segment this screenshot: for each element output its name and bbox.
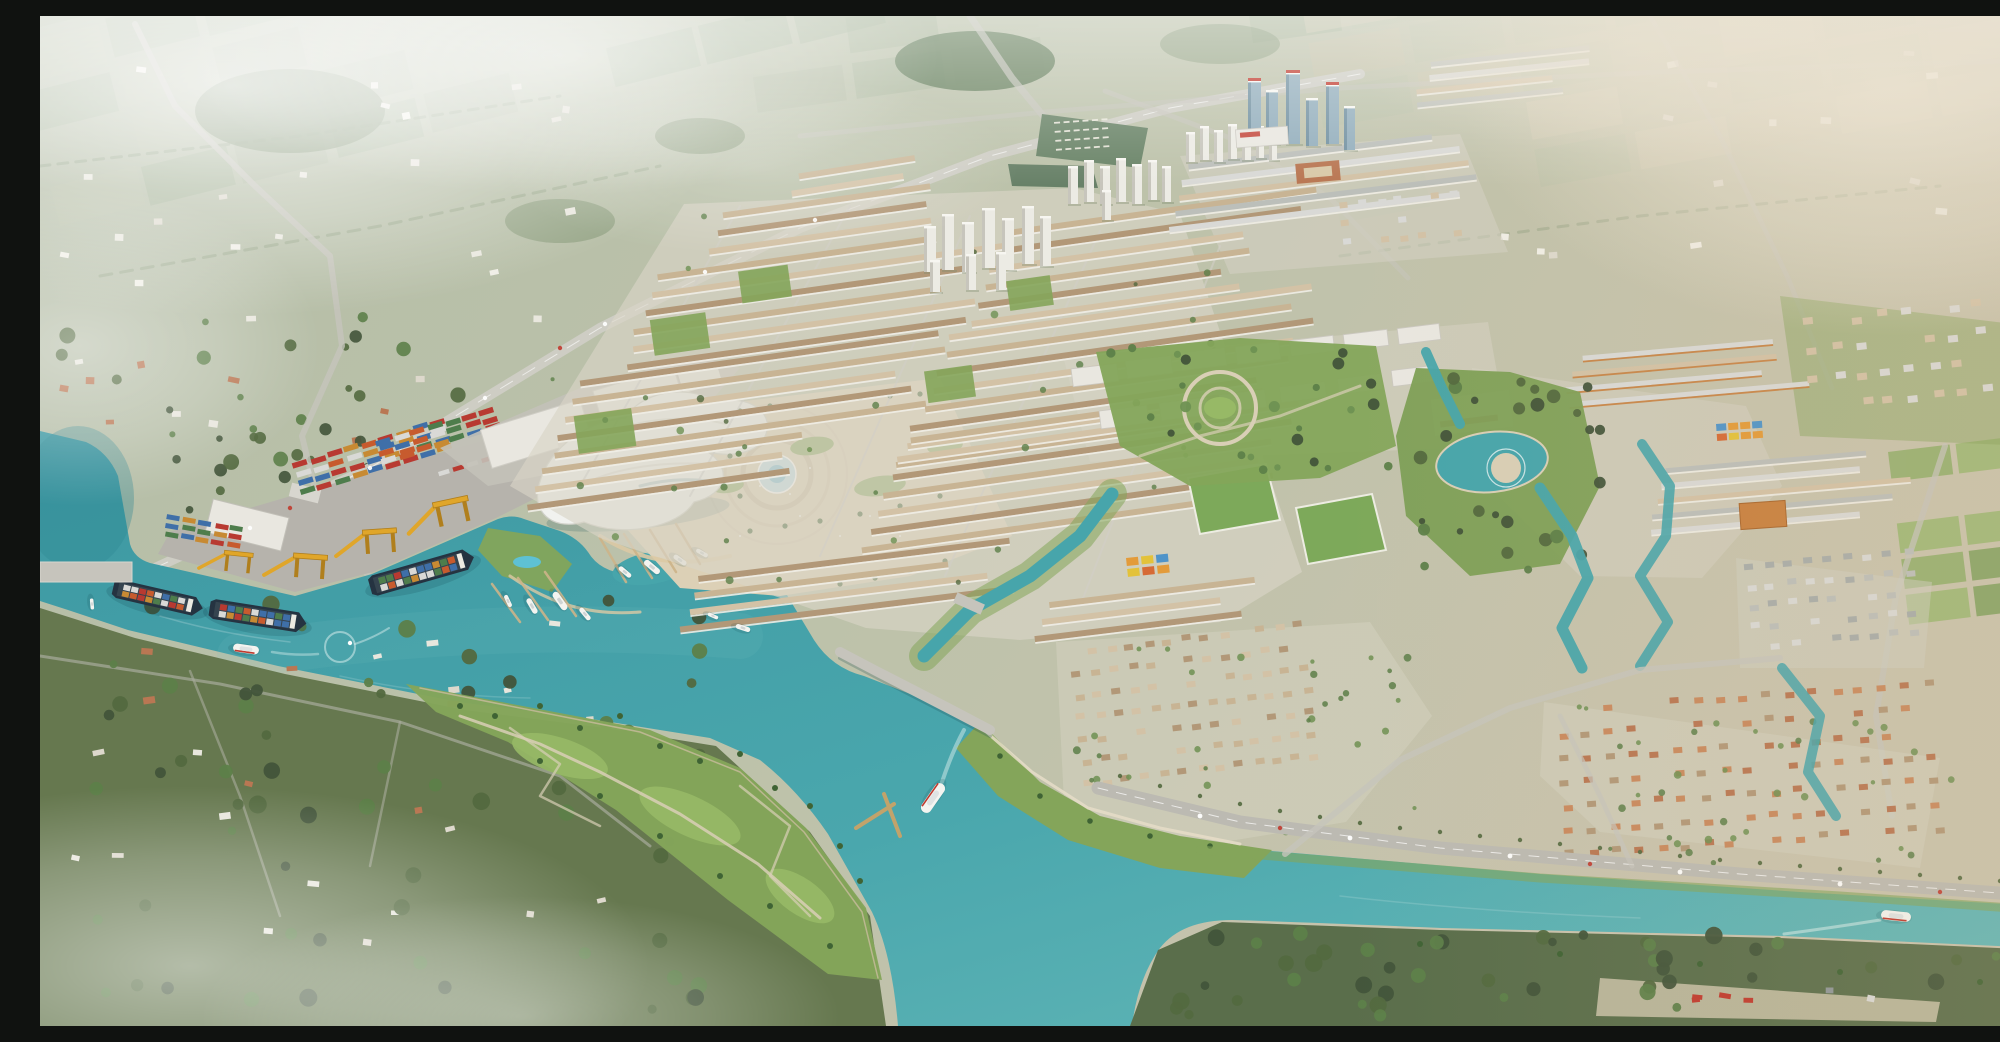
villa-gardens bbox=[1194, 746, 1200, 752]
village-trees-nw bbox=[186, 506, 194, 514]
school-colorful-cell bbox=[1156, 554, 1169, 563]
park-trees bbox=[1250, 346, 1257, 353]
palm-trees bbox=[597, 793, 603, 799]
villas-center-cell bbox=[1114, 709, 1124, 716]
school-colorful-cell bbox=[1126, 557, 1139, 566]
village-trees bbox=[219, 765, 233, 779]
palm-trees bbox=[1087, 818, 1093, 824]
village-houses-nw bbox=[416, 376, 425, 382]
scene-layers bbox=[40, 16, 2000, 1026]
villas-center-cell bbox=[1186, 681, 1196, 688]
village-trees-nw bbox=[291, 449, 303, 461]
village-trees-nw bbox=[354, 390, 366, 402]
villas-center-cell bbox=[1188, 700, 1198, 707]
highway-cars bbox=[603, 322, 607, 326]
villa-gardens bbox=[1073, 746, 1081, 754]
villas-center-cell bbox=[1233, 760, 1243, 767]
street-trees bbox=[873, 490, 878, 495]
street-trees bbox=[807, 447, 812, 452]
street-trees bbox=[577, 482, 584, 489]
palm-trees bbox=[827, 943, 833, 949]
villas-center-cell bbox=[1075, 713, 1085, 720]
village-trees bbox=[264, 762, 280, 778]
apartment-towers-shadow bbox=[1084, 202, 1097, 204]
palm-trees bbox=[577, 725, 583, 731]
village-trees bbox=[503, 675, 517, 689]
apartment-towers bbox=[985, 210, 995, 268]
villas-center-cell bbox=[1198, 634, 1208, 641]
street-trees bbox=[1040, 387, 1046, 393]
village-trees-nw bbox=[358, 312, 368, 322]
villa-gardens bbox=[1089, 778, 1094, 783]
palm-trees bbox=[807, 803, 813, 809]
villas-center-cell bbox=[1111, 688, 1121, 695]
village-trees-nw bbox=[216, 486, 225, 495]
street-trees bbox=[742, 444, 747, 449]
villas-center-cell bbox=[1083, 759, 1093, 766]
villa-gardens bbox=[1310, 671, 1317, 678]
village-trees bbox=[653, 848, 668, 863]
farm-houses bbox=[533, 315, 541, 322]
village-houses bbox=[141, 648, 153, 655]
park-trees bbox=[1106, 348, 1115, 357]
villas-center-cell bbox=[1260, 646, 1270, 653]
villas-center-cell bbox=[1145, 641, 1155, 648]
palm-trees bbox=[997, 753, 1003, 759]
apartment-towers-roof bbox=[996, 252, 1006, 254]
street-trees bbox=[671, 485, 677, 491]
apartment-towers-shadow bbox=[1148, 200, 1160, 202]
villas-center-cell bbox=[1267, 713, 1277, 720]
apartment-towers-shadow bbox=[1132, 204, 1145, 206]
park-trees bbox=[1325, 465, 1332, 472]
park-trees bbox=[1147, 413, 1155, 421]
street-trees bbox=[643, 395, 648, 400]
villas-center-cell bbox=[1146, 662, 1156, 669]
village-trees-nw bbox=[273, 452, 288, 467]
villas-center-cell bbox=[1152, 705, 1162, 712]
villas-center-cell bbox=[1124, 644, 1134, 651]
villas-center-cell bbox=[1299, 664, 1309, 671]
villas-center-cell bbox=[1290, 753, 1300, 760]
street-trees bbox=[720, 483, 727, 490]
villa-gardens bbox=[1203, 766, 1207, 770]
village-trees bbox=[239, 687, 252, 700]
container-ship-container bbox=[274, 620, 282, 627]
village-trees bbox=[110, 660, 118, 668]
park-trees bbox=[1180, 401, 1191, 412]
village-trees bbox=[155, 767, 166, 778]
village-trees-nw bbox=[349, 330, 361, 342]
street-trees bbox=[1190, 317, 1196, 323]
villas-center-cell bbox=[1275, 624, 1285, 631]
village-trees-nw bbox=[279, 471, 291, 483]
village-houses bbox=[193, 749, 202, 755]
park-trees bbox=[1174, 351, 1181, 358]
villas-center-cell bbox=[1264, 693, 1274, 700]
park-trees bbox=[1292, 434, 1304, 446]
palm-trees bbox=[717, 873, 723, 879]
far-bank-trees bbox=[1184, 1010, 1193, 1019]
apartment-towers-roof bbox=[1102, 190, 1111, 192]
park-trees bbox=[1274, 464, 1280, 470]
villas-center-cell bbox=[1087, 647, 1097, 654]
village-trees bbox=[692, 643, 707, 658]
village-trees-nw bbox=[345, 385, 352, 392]
villas-center-cell bbox=[1183, 655, 1193, 662]
village-trees bbox=[603, 595, 615, 607]
apartment-towers-roof bbox=[1022, 206, 1034, 208]
street-trees bbox=[676, 427, 684, 435]
palm-trees bbox=[737, 751, 743, 757]
villas-center-cell bbox=[1243, 673, 1253, 680]
villas-center-cell bbox=[1091, 669, 1101, 676]
palm-trees bbox=[657, 833, 663, 839]
villas-center-cell bbox=[1176, 747, 1186, 754]
highway-cars bbox=[288, 506, 292, 510]
villa-gardens bbox=[1322, 701, 1328, 707]
apartment-towers-shadow bbox=[1116, 202, 1129, 204]
park-trees bbox=[1237, 451, 1245, 459]
far-bank-trees bbox=[1208, 929, 1225, 946]
villas-center-cell bbox=[1309, 754, 1319, 761]
apartment-towers-roof bbox=[966, 254, 976, 256]
villa-gardens bbox=[1165, 646, 1170, 651]
apartment-towers-shadow bbox=[982, 268, 998, 270]
villas-center-cell bbox=[1097, 736, 1107, 743]
apartment-towers-shadow bbox=[942, 270, 957, 272]
villa-gardens bbox=[1091, 732, 1098, 739]
villas-center-cell bbox=[1279, 667, 1289, 674]
islet-pool bbox=[513, 556, 541, 568]
container-ship-container bbox=[219, 604, 227, 611]
street-trees bbox=[872, 402, 879, 409]
apartment-towers bbox=[999, 254, 1006, 290]
palm-trees bbox=[537, 758, 543, 764]
container-ship-container bbox=[234, 613, 242, 620]
villas-center-cell bbox=[1192, 723, 1202, 730]
apartment-towers-side bbox=[982, 210, 985, 268]
container-ship-container bbox=[266, 618, 274, 625]
apartment-towers-shadow bbox=[1162, 202, 1174, 204]
apartment-towers-side bbox=[966, 256, 969, 290]
container-ship-container bbox=[251, 609, 259, 616]
villas-center-cell bbox=[1202, 656, 1212, 663]
park-trees bbox=[1259, 465, 1268, 474]
village-trees bbox=[112, 696, 128, 712]
street-trees bbox=[686, 266, 691, 271]
street-trees bbox=[602, 417, 608, 423]
apartment-towers-roof bbox=[930, 260, 940, 262]
palm-trees bbox=[457, 703, 463, 709]
villas-center-cell bbox=[1292, 620, 1302, 627]
container-ship-container bbox=[250, 616, 258, 623]
apartment-towers-shadow bbox=[930, 292, 943, 294]
village-trees bbox=[238, 698, 253, 713]
villas-center-cell bbox=[1162, 639, 1172, 646]
far-bank-trees bbox=[1170, 1002, 1183, 1015]
palm-trees bbox=[657, 743, 663, 749]
park-trees bbox=[1269, 401, 1280, 412]
villas-center-cell bbox=[1247, 694, 1257, 701]
highway-cars bbox=[558, 346, 562, 350]
apartment-towers bbox=[1043, 218, 1051, 266]
palm-trees bbox=[857, 878, 863, 884]
container-ship-container bbox=[259, 610, 267, 617]
container-ship-container bbox=[227, 605, 235, 612]
village-trees bbox=[687, 678, 697, 688]
villas-center-cell bbox=[1177, 768, 1187, 775]
pocket-park bbox=[924, 365, 976, 403]
villas-center-cell bbox=[1160, 770, 1170, 777]
villas-center-cell bbox=[1101, 754, 1111, 761]
median-trees bbox=[1118, 774, 1122, 778]
village-trees bbox=[429, 778, 442, 791]
street-trees bbox=[726, 576, 734, 584]
palm-trees bbox=[617, 713, 623, 719]
park-trees bbox=[1313, 384, 1320, 391]
apartment-towers bbox=[1105, 192, 1111, 220]
villas-center-cell bbox=[1129, 662, 1139, 669]
far-bank-trees bbox=[1232, 995, 1243, 1006]
village-trees bbox=[364, 678, 373, 687]
villas-center-cell bbox=[1262, 670, 1272, 677]
villas-center-cell bbox=[1139, 772, 1149, 779]
villa-gardens bbox=[1189, 669, 1195, 675]
median-trees bbox=[1278, 809, 1282, 813]
village-trees-nw bbox=[319, 423, 331, 435]
apartment-towers-side bbox=[1102, 192, 1105, 220]
villa-gardens bbox=[1097, 753, 1102, 758]
village-trees-nw bbox=[396, 342, 410, 356]
street-trees bbox=[724, 538, 729, 543]
apartment-towers bbox=[969, 256, 976, 290]
apartment-towers-shadow bbox=[966, 290, 979, 292]
apartment-towers-shadow bbox=[1022, 264, 1037, 266]
villa-gardens bbox=[1126, 774, 1131, 779]
villas-center-cell bbox=[1097, 711, 1107, 718]
apartment-towers bbox=[933, 262, 940, 292]
villas-center-cell bbox=[1172, 724, 1182, 731]
apartment-towers bbox=[1005, 220, 1014, 270]
street-trees bbox=[1134, 282, 1138, 286]
apartment-towers-roof bbox=[962, 222, 974, 224]
village-trees bbox=[162, 678, 178, 694]
villas-center-cell bbox=[1304, 687, 1314, 694]
street-trees bbox=[995, 546, 1001, 552]
village-houses bbox=[286, 666, 297, 671]
villas-center-cell bbox=[1279, 646, 1289, 653]
apartment-towers-side bbox=[1022, 208, 1025, 264]
school-colorful-cell bbox=[1141, 555, 1154, 564]
village-trees bbox=[175, 755, 187, 767]
container-ship-container bbox=[226, 612, 234, 619]
park-trees bbox=[1179, 382, 1185, 388]
palm-trees bbox=[772, 785, 778, 791]
pocket-park bbox=[1006, 275, 1054, 311]
school-colorful-cell bbox=[1157, 565, 1170, 574]
villas-center-cell bbox=[1078, 736, 1088, 743]
apartment-towers-shadow bbox=[1040, 266, 1054, 268]
container-ship-container bbox=[235, 606, 243, 613]
apartment-towers-roof bbox=[1002, 218, 1014, 220]
pocket-park bbox=[574, 408, 637, 454]
villas-center-cell bbox=[1290, 731, 1300, 738]
far-bank-trees bbox=[1287, 973, 1301, 987]
apartment-towers-shadow bbox=[1102, 220, 1114, 222]
apartment-towers-side bbox=[962, 224, 965, 272]
boulevard-cars bbox=[1278, 826, 1282, 830]
villas-center-cell bbox=[1215, 765, 1225, 772]
village-trees bbox=[251, 684, 263, 696]
boulevard-cars bbox=[1198, 814, 1203, 819]
street-trees bbox=[1022, 444, 1030, 452]
palm-trees bbox=[697, 758, 703, 764]
villas-center-cell bbox=[1255, 758, 1265, 765]
highway-cars bbox=[248, 526, 252, 530]
median-trees bbox=[1238, 802, 1242, 806]
villa-gardens bbox=[1137, 647, 1142, 652]
apartment-towers-side bbox=[1040, 218, 1043, 266]
villas-center-cell bbox=[1306, 732, 1316, 739]
villas-center-cell bbox=[1181, 634, 1191, 641]
far-bank-trees bbox=[1278, 955, 1294, 971]
villas-center-cell bbox=[1226, 698, 1236, 705]
far-bank-trees bbox=[1201, 981, 1210, 990]
villa-gardens bbox=[1306, 718, 1310, 722]
villas-center-cell bbox=[1118, 754, 1128, 761]
palm-trees bbox=[1147, 833, 1153, 839]
jetski bbox=[348, 641, 352, 645]
apartment-towers-roof bbox=[1040, 216, 1051, 218]
villas-center-cell bbox=[1272, 735, 1282, 742]
villas-center-cell bbox=[1071, 671, 1081, 678]
villas-center-cell bbox=[1131, 687, 1141, 694]
far-bank-trees bbox=[1251, 937, 1262, 948]
street-trees bbox=[697, 395, 704, 402]
container-ship-container bbox=[283, 614, 291, 621]
container-ship-container bbox=[282, 621, 290, 628]
park-trees bbox=[1167, 430, 1174, 437]
park-trees bbox=[1181, 355, 1191, 365]
village-trees bbox=[473, 793, 491, 811]
street-trees bbox=[736, 451, 742, 457]
street-trees bbox=[891, 537, 897, 543]
street-trees bbox=[612, 533, 619, 540]
villas-center-cell bbox=[1109, 665, 1119, 672]
villas-center-cell bbox=[1147, 683, 1157, 690]
park-trees bbox=[1296, 425, 1302, 431]
apartment-towers-side bbox=[930, 262, 933, 292]
apartment-towers-shadow bbox=[1068, 204, 1081, 206]
median-trees bbox=[1198, 794, 1202, 798]
school-colorful-cell bbox=[1142, 566, 1155, 575]
villas-center-cell bbox=[1225, 672, 1235, 679]
container-ship-container bbox=[267, 611, 275, 618]
street-trees bbox=[956, 580, 961, 585]
palm-trees bbox=[837, 843, 843, 849]
highway-cars bbox=[368, 466, 372, 470]
villas-center-cell bbox=[1286, 713, 1296, 720]
far-bank-trees bbox=[1305, 954, 1323, 972]
container-ship-container bbox=[258, 617, 266, 624]
aerial-masterplan-render bbox=[40, 16, 2000, 1026]
villas-center-cell bbox=[1249, 738, 1259, 745]
villas-center-cell bbox=[1210, 721, 1220, 728]
park-trees bbox=[1194, 423, 1202, 431]
villas-center-cell bbox=[1233, 740, 1243, 747]
school-colorful-cell bbox=[1127, 568, 1140, 577]
apartment-towers bbox=[1025, 208, 1034, 264]
park-trees bbox=[1310, 457, 1319, 466]
villas-center-cell bbox=[1272, 757, 1282, 764]
lake-bridge bbox=[40, 562, 132, 582]
street-trees bbox=[1204, 269, 1211, 276]
apartment-towers-shadow bbox=[996, 290, 1009, 292]
villas-center-cell bbox=[1171, 703, 1181, 710]
villas-center-cell bbox=[1255, 625, 1265, 632]
village-trees bbox=[398, 620, 416, 638]
highway-cars bbox=[703, 270, 707, 274]
village-trees-nw bbox=[450, 387, 465, 402]
container-ship-container bbox=[275, 613, 283, 620]
park-trees bbox=[1248, 454, 1255, 461]
villas-center-cell bbox=[1221, 654, 1231, 661]
village-trees bbox=[377, 760, 391, 774]
villas-center-cell bbox=[1232, 718, 1242, 725]
villas-center-cell bbox=[1092, 691, 1102, 698]
scene-canvas bbox=[40, 16, 2000, 1026]
palm-trees bbox=[1037, 793, 1043, 799]
village-trees bbox=[376, 689, 385, 698]
street-trees bbox=[1152, 485, 1157, 490]
fog-cloud bbox=[500, 76, 1020, 256]
villas-center-cell bbox=[1131, 708, 1141, 715]
street-trees bbox=[991, 311, 999, 319]
container-ship-container bbox=[218, 611, 226, 618]
village-trees bbox=[262, 730, 272, 740]
far-bank-trees bbox=[1293, 926, 1308, 941]
median-trees bbox=[1318, 815, 1322, 819]
villa-gardens bbox=[1310, 659, 1314, 663]
villas-center-cell bbox=[1076, 694, 1086, 701]
villas-center-cell bbox=[1108, 645, 1118, 652]
street-trees bbox=[551, 377, 555, 381]
container-ship-container bbox=[242, 615, 250, 622]
villas-center-cell bbox=[1213, 741, 1223, 748]
palm-trees bbox=[767, 903, 773, 909]
villas-center-cell bbox=[1208, 698, 1218, 705]
villas-center-cell bbox=[1220, 632, 1230, 639]
villas-center-cell bbox=[1136, 728, 1146, 735]
street-trees bbox=[724, 419, 729, 424]
water-sheen bbox=[240, 629, 740, 656]
park-trees bbox=[1128, 344, 1136, 352]
highway-cars bbox=[483, 396, 487, 400]
village-trees bbox=[462, 649, 478, 665]
village-trees bbox=[552, 781, 567, 796]
park-lawn bbox=[1204, 397, 1236, 419]
median-trees bbox=[1158, 784, 1162, 788]
villa-gardens bbox=[1204, 782, 1211, 789]
street-trees bbox=[776, 577, 782, 583]
palm-trees bbox=[537, 703, 543, 709]
villas-center-cell bbox=[1304, 708, 1314, 715]
apartment-towers-side bbox=[996, 254, 999, 290]
village-trees bbox=[104, 710, 115, 721]
villa-gardens bbox=[1237, 654, 1244, 661]
container-ship-container bbox=[243, 608, 251, 615]
